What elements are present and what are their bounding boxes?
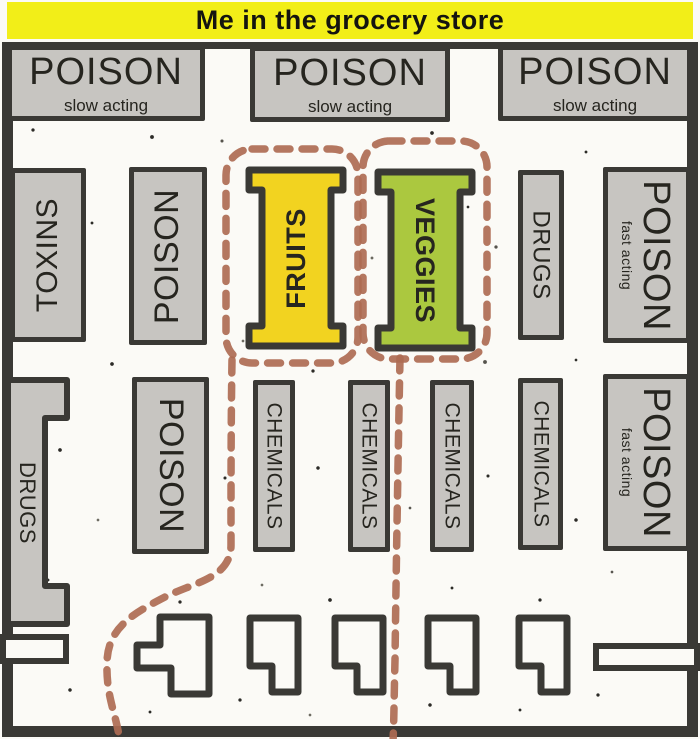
aisle-label: POISON	[637, 387, 675, 538]
aisle-label: CHEMICALS	[529, 400, 553, 527]
checkout-counter-5	[519, 618, 567, 692]
fruits-label: FRUITS	[281, 208, 312, 309]
shelf-label: POISON	[518, 53, 672, 91]
aisle-sublabel: fast acting	[620, 428, 634, 497]
aisle-toxins: TOXINS	[10, 168, 86, 342]
aisle-label: POISON	[637, 180, 675, 331]
shelf-sublabel: slow acting	[64, 97, 148, 114]
aisle-sublabel: fast acting	[620, 220, 634, 289]
aisle-label: CHEMICALS	[262, 402, 286, 529]
aisle-drugs-mid: DRUGS	[518, 170, 564, 340]
grocery-store-meme: Me in the grocery store POISON slow acti…	[0, 0, 700, 739]
aisle-chemicals-2: CHEMICALS	[348, 380, 390, 552]
veggies-stand: VEGGIES	[384, 177, 466, 343]
aisle-poison-fast-mid: POISON fast acting	[603, 167, 691, 343]
aisle-label: DRUGS	[527, 210, 555, 299]
checkout-counter-2	[250, 618, 298, 692]
aisle-drugs-bottom: DRUGS	[6, 395, 48, 610]
shelf-label: POISON	[29, 53, 183, 91]
aisle-poison-bottom: POISON	[132, 377, 209, 554]
wall-bottom	[2, 726, 698, 737]
page-title: Me in the grocery store	[196, 5, 505, 36]
shelf-label: POISON	[273, 54, 427, 92]
shelf-sublabel: slow acting	[553, 97, 637, 114]
checkout-counter-3	[335, 618, 383, 692]
wall-left	[2, 42, 13, 737]
aisle-label: TOXINS	[31, 198, 65, 312]
wall-stub-right	[596, 646, 697, 668]
route-exit-tail	[393, 358, 400, 739]
aisle-poison-mid: POISON	[129, 167, 207, 345]
checkout-counter-1	[137, 617, 209, 694]
fruits-stand: FRUITS	[255, 175, 337, 341]
aisle-poison-fast-bottom: POISON fast acting	[603, 374, 691, 551]
aisle-chemicals-3: CHEMICALS	[430, 380, 474, 552]
checkout-counter-4	[428, 618, 476, 692]
aisle-chemicals-1: CHEMICALS	[253, 380, 295, 552]
shelf-poison-slow-2: POISON slow acting	[250, 46, 450, 122]
veggies-label: VEGGIES	[410, 197, 441, 322]
aisle-chemicals-4: CHEMICALS	[518, 378, 563, 550]
shelf-poison-slow-1: POISON slow acting	[7, 45, 205, 121]
aisle-label: CHEMICALS	[357, 402, 381, 529]
aisle-label: DRUGS	[14, 462, 40, 544]
aisle-label: POISON	[151, 398, 190, 533]
shelf-poison-slow-3: POISON slow acting	[498, 45, 692, 121]
aisle-label: CHEMICALS	[440, 402, 464, 529]
shelf-sublabel: slow acting	[308, 98, 392, 115]
aisle-label: POISON	[149, 188, 188, 323]
banner: Me in the grocery store	[7, 2, 693, 39]
